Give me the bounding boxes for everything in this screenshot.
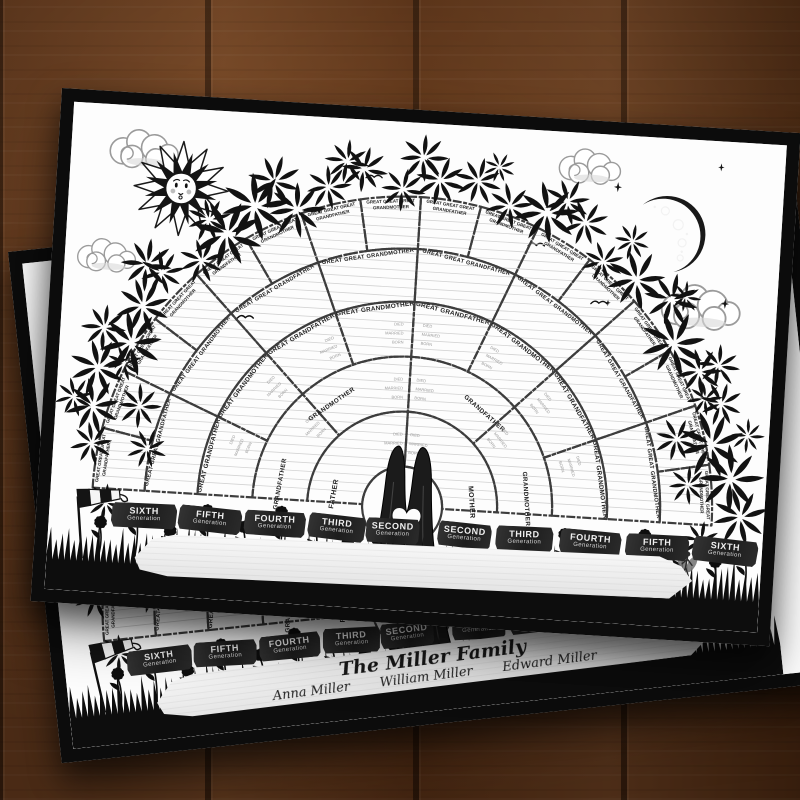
generation-ticket-sixth: SIXTHGeneration xyxy=(125,643,194,678)
ticket-subtitle: Generation xyxy=(625,546,689,555)
ticket-subtitle: Generation xyxy=(111,515,177,524)
generation-ticket-fifth: FIFTHGeneration xyxy=(177,504,243,535)
generation-ticket-sixth: SIXTHGeneration xyxy=(111,502,178,530)
front-poster-page: FATHERBORNMARRIEDDIEDMOTHERBORNMARRIEDDI… xyxy=(44,102,786,633)
generation-ticket-third: THIRDGeneration xyxy=(495,525,554,553)
generation-ticket-third: THIRDGeneration xyxy=(307,512,367,543)
generation-ticket-sixth: SIXTHGeneration xyxy=(691,535,759,567)
wood-table-background: { "scene": { "surface": "wood-plank-tabl… xyxy=(0,0,800,800)
ticket-subtitle: Generation xyxy=(495,538,553,547)
generation-ticket-third: THIRDGeneration xyxy=(322,625,382,655)
generation-ticket-fourth: FOURTHGeneration xyxy=(257,630,322,663)
generation-ticket-fourth: FOURTHGeneration xyxy=(243,509,306,538)
front-poster: FATHERBORNMARRIEDDIEDMOTHERBORNMARRIEDDI… xyxy=(31,88,800,646)
generation-ticket-second: SECONDGeneration xyxy=(365,517,420,545)
generation-ticket-fifth: FIFTHGeneration xyxy=(192,638,258,669)
generation-ticket-second: SECONDGeneration xyxy=(436,520,492,551)
ticket-subtitle: Generation xyxy=(244,522,306,532)
